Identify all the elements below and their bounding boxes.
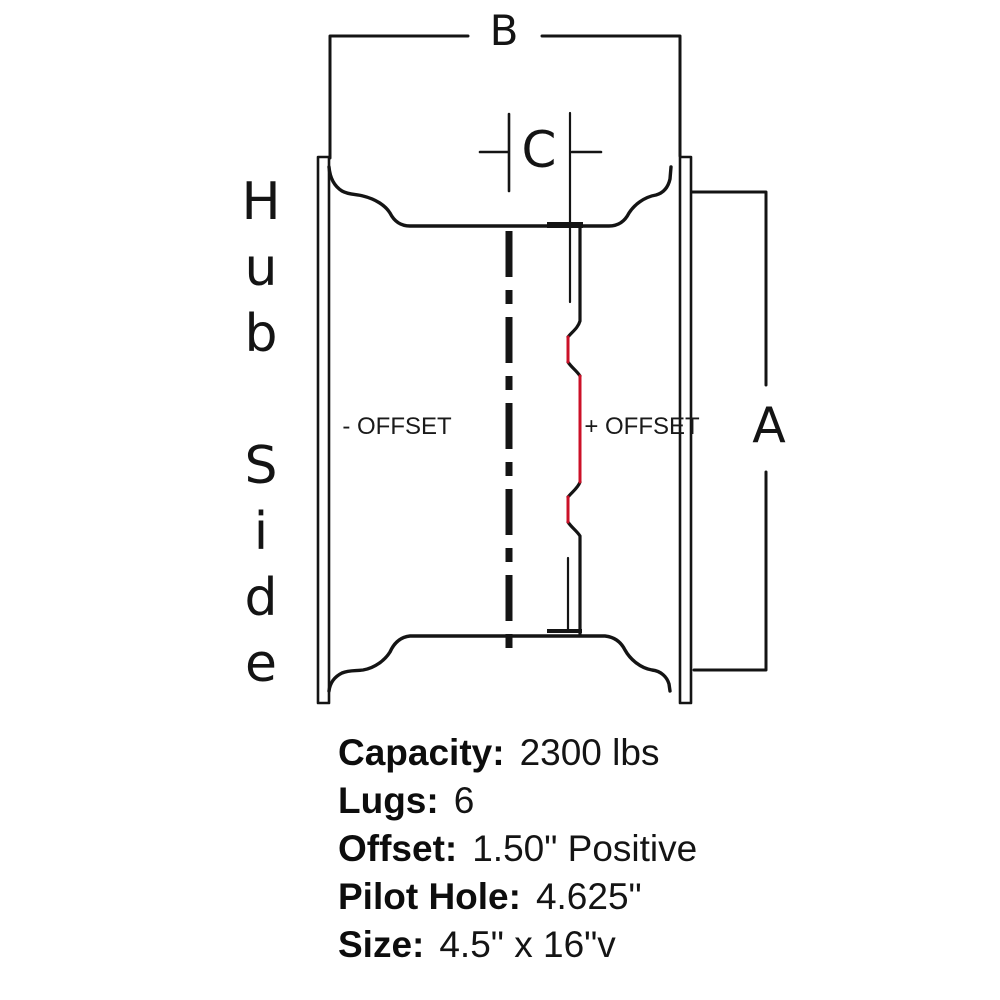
positive-offset-label: + OFFSET: [581, 413, 703, 441]
rim-top-profile: [329, 167, 671, 226]
rim-left-flange: [318, 157, 329, 703]
spec-label: Offset:: [338, 828, 457, 869]
spec-list: Capacity:2300 lbs Lugs:6 Offset:1.50" Po…: [338, 729, 697, 969]
spec-row-capacity: Capacity:2300 lbs: [338, 729, 697, 777]
hub-side-label: Hub Side: [231, 172, 291, 700]
dim-c-label: C: [507, 122, 571, 178]
rim-bottom-profile: [329, 636, 670, 691]
dim-c-extension-lines: [568, 113, 570, 630]
spec-label: Size:: [338, 924, 424, 965]
spec-label: Lugs:: [338, 780, 439, 821]
spec-row-offset: Offset:1.50" Positive: [338, 825, 697, 873]
spec-value: 2300 lbs: [520, 732, 660, 773]
spec-row-lugs: Lugs:6: [338, 777, 697, 825]
spec-value: 4.5" x 16"v: [439, 924, 615, 965]
spec-row-size: Size:4.5" x 16"v: [338, 921, 697, 969]
wheel-offset-diagram: B C A Hub Side - OFFSET + OFFSET Capacit…: [0, 0, 1000, 1000]
spec-label: Capacity:: [338, 732, 505, 773]
dim-b-label: B: [472, 6, 536, 56]
spec-label: Pilot Hole:: [338, 876, 521, 917]
dim-a-label: A: [736, 400, 802, 452]
spec-row-pilot-hole: Pilot Hole:4.625": [338, 873, 697, 921]
spec-value: 6: [454, 780, 475, 821]
spec-value: 4.625": [536, 876, 642, 917]
spec-value: 1.50" Positive: [472, 828, 697, 869]
negative-offset-label: - OFFSET: [336, 413, 458, 441]
